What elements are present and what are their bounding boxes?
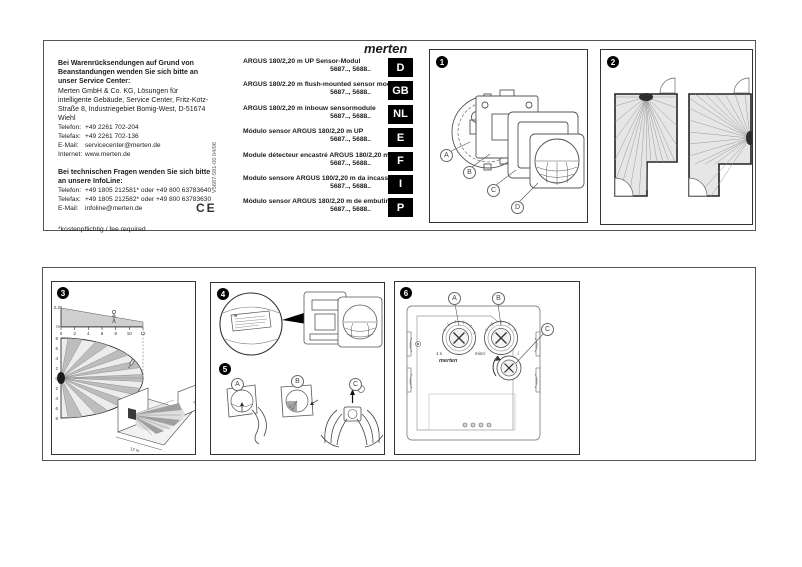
step-label-b: B: [291, 375, 304, 388]
y-tick: 4: [55, 356, 58, 361]
merten-logo: merten: [364, 41, 406, 56]
contact-row: Telefon: +49 2261 702-204: [58, 123, 211, 132]
step-a-figure: [227, 385, 266, 444]
language-badge-nl: NL: [388, 105, 413, 124]
sensor-position-marker: [639, 93, 653, 101]
floorplan-diagram: [601, 50, 752, 224]
product-models: 5687.., 5688..: [243, 113, 371, 121]
part-label-c: C: [487, 184, 500, 197]
y-tick: 6: [55, 346, 58, 351]
step-label-c: C: [349, 378, 362, 391]
sun-icon: ☼: [481, 351, 487, 357]
product-models: 5687.., 5688..: [243, 183, 371, 191]
product-row: ARGUS 180/2,20 m UP Sensor-Modul 5687..,…: [243, 58, 413, 81]
y-tick: 2: [55, 366, 58, 371]
panel-label-and-mounting: 4 5: [210, 282, 385, 455]
bottom-section: 3 2,2 m 0 2 4 6 8 10 12: [42, 267, 756, 461]
panel-number-badge: 2: [607, 56, 619, 68]
contact-value: +49 2261 702-136: [85, 132, 139, 141]
x-tick: 0: [60, 331, 63, 336]
language-badge-d: D: [388, 58, 413, 77]
merten-small-logo: merten: [439, 358, 458, 364]
product-models: 5687.., 5688..: [243, 66, 371, 74]
contact-row: E-Mail: servicecenter@merten.de: [58, 141, 211, 150]
contact-label: Telefax:: [58, 132, 85, 141]
y-tick: 6: [55, 406, 58, 411]
infoline-header: Bei technischen Fragen wenden Sie sich b…: [58, 168, 211, 186]
language-badge-e: E: [388, 128, 413, 147]
contact-value: +49 1805 212582* oder +49 800 63783630: [85, 195, 211, 204]
moon-icon: ☾: [517, 351, 521, 357]
x-tick: 4: [87, 331, 90, 336]
step-label-a: A: [231, 378, 244, 391]
product-row: ARGUS 180/2.20 m flush-mounted sensor mo…: [243, 81, 413, 104]
product-title-list: ARGUS 180/2,20 m UP Sensor-Modul 5687..,…: [243, 58, 413, 222]
panel-number-badge: 6: [400, 287, 412, 299]
x-tick: 8: [114, 331, 117, 336]
top-section: Bei Warenrücksendungen auf Grund von Bea…: [43, 40, 756, 231]
instruction-sheet-page: Bei Warenrücksendungen auf Grund von Bea…: [0, 0, 802, 567]
language-badge-gb: GB: [388, 81, 413, 100]
knob-label-c: C: [541, 323, 554, 336]
contact-label: E-Mail:: [58, 204, 85, 213]
product-row: Módulo sensor ARGUS 180/2,20 m de embuti…: [243, 198, 413, 221]
product-models: 5687.., 5688..: [243, 160, 371, 168]
contact-row: Telefax: +49 2261 702-136: [58, 132, 211, 141]
knob-label-a: A: [448, 292, 461, 305]
knob-a-min-label: 1 s: [436, 351, 443, 356]
panel-detection-range: 3 2,2 m 0 2 4 6 8 10 12: [51, 281, 196, 455]
panel-number-badge: 3: [57, 287, 69, 299]
x-tick: 6: [101, 331, 104, 336]
language-badge-f: F: [388, 152, 413, 171]
product-models: 5687.., 5688..: [243, 89, 371, 97]
contact-label: Internet:: [58, 150, 85, 159]
contact-label: Telefax:: [58, 195, 85, 204]
y-tick: 8: [55, 416, 58, 421]
y-tick: 8: [55, 336, 58, 341]
part-label-b: B: [463, 166, 476, 179]
print-code-vertical: V5687-581-00 04/06: [212, 97, 218, 193]
y-tick: 2: [55, 386, 58, 391]
knob-label-b: B: [492, 292, 505, 305]
mount-height-tick: 2,2: [54, 305, 61, 310]
returns-header: Bei Warenrücksendungen auf Grund von Bea…: [58, 59, 211, 86]
contact-value: servicecenter@merten.de: [85, 141, 161, 150]
front-panel-diagram: 1 s min ☼ ☾: [395, 282, 579, 454]
x-tick: 10: [127, 331, 133, 336]
corridor-length-label: 12 m: [130, 446, 141, 453]
part-label-a: A: [440, 149, 453, 162]
language-badge-p: P: [388, 198, 413, 217]
step-b-figure: [281, 385, 318, 417]
exploded-view-diagram: [430, 50, 587, 222]
contact-row: Telefax: +49 1805 212582* oder +49 800 6…: [58, 195, 211, 204]
product-row: Module détecteur encastré ARGUS 180/2,20…: [243, 152, 413, 175]
axis-unit-label: m: [56, 324, 60, 329]
language-badge-i: I: [388, 175, 413, 194]
contact-label: Telefon:: [58, 123, 85, 132]
panel-exploded-view: 1: [429, 49, 588, 223]
contact-label: Telefon:: [58, 186, 85, 195]
contact-value: infoline@merten.de: [85, 204, 142, 213]
ce-mark-icon: CE: [196, 201, 217, 215]
contact-value: +49 2261 702-204: [85, 123, 139, 132]
product-row: ARGUS 180/2,20 m inbouw sensormodule 568…: [243, 105, 413, 128]
contact-row: E-Mail: infoline@merten.de: [58, 204, 211, 213]
detection-range-chart: 2,2 m 0 2 4 6 8 10 12: [52, 282, 195, 454]
contact-label: E-Mail:: [58, 141, 85, 150]
contact-value: +49 1805 212581* oder +49 800 63783640: [85, 186, 211, 195]
panel-number-badge: 4: [217, 288, 229, 300]
panel-detection-floorplans: 2: [600, 49, 753, 225]
fee-footnote: *kostenpflichtig / fee required: [58, 225, 211, 234]
product-models: 5687.., 5688..: [243, 136, 371, 144]
magnifier-pointer: [282, 312, 307, 324]
step-c-figure: [321, 386, 383, 447]
contact-row: Internet: www.merten.de: [58, 150, 211, 159]
contact-row: Telefon: +49 1805 212581* oder +49 800 6…: [58, 186, 211, 195]
contact-value: www.merten.de: [85, 150, 130, 159]
x-tick: 2: [73, 331, 76, 336]
product-row: Modulo sensore ARGUS 180/2,20 m da incas…: [243, 175, 413, 198]
panel-adjustment-knobs: 6: [394, 281, 580, 455]
product-row: Módulo sensor ARGUS 180/2,20 m UP 5687..…: [243, 128, 413, 151]
y-tick: 4: [55, 396, 58, 401]
panel-number-badge: 5: [219, 363, 231, 375]
product-models: 5687.., 5688..: [243, 206, 371, 214]
part-label-d: D: [511, 201, 524, 214]
mounting-steps-diagram: [211, 283, 384, 454]
service-address: Merten GmbH & Co. KG, Lösungen für intel…: [58, 87, 211, 123]
service-address-block: Bei Warenrücksendungen auf Grund von Bea…: [58, 59, 211, 234]
panel-number-badge: 1: [436, 56, 448, 68]
